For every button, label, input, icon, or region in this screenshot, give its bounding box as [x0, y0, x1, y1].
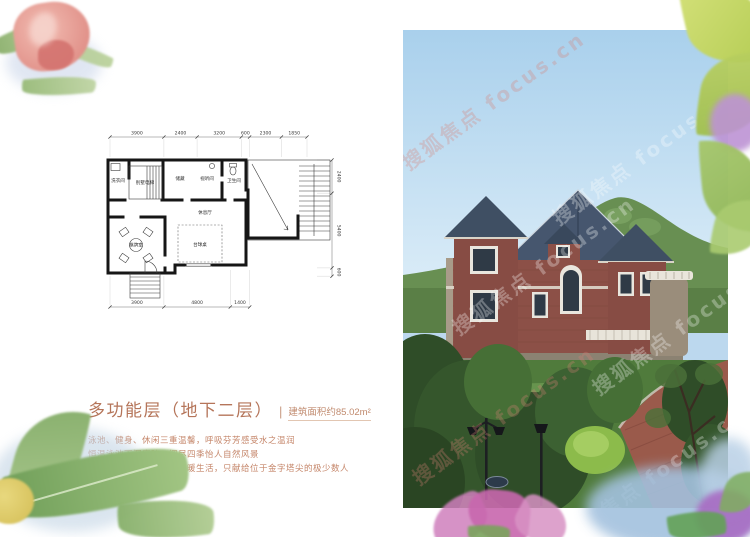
staircase: [248, 160, 330, 240]
dim-label: 2300: [260, 131, 272, 137]
watercolor-leaf-icon: [116, 492, 217, 537]
dim-label: 2400: [175, 131, 187, 137]
dim-label: 3900: [131, 300, 143, 306]
floor-title: 多功能层（地下二层）: [88, 396, 273, 421]
villa-photo: 搜狐焦点 focus.cn 搜狐焦点 focus.cn 搜狐焦点 focus.c…: [403, 30, 728, 508]
dim-label: 600: [241, 131, 250, 137]
lemon-icon: [0, 478, 34, 524]
floor-plan: 3900 2400 3200 600 2300 1850 2400 5400 6…: [85, 120, 350, 330]
window: [185, 264, 212, 266]
garden-well: [486, 477, 508, 488]
floor-info-block: 多功能层（地下二层） | 建筑面积约85.02m² 泳池、健身、休闲三重温馨，呼…: [88, 396, 388, 475]
flower-sepal-icon: [467, 522, 511, 537]
watercolor-leaf-icon: [665, 503, 729, 537]
room-label: 视听间: [200, 175, 214, 182]
garden: [403, 334, 728, 508]
watercolor-shadow-topleft: [6, 34, 102, 92]
villa-photo-scene: [403, 30, 728, 508]
watercolor-leaf-icon: [0, 397, 93, 528]
room-label: 棋牌室: [129, 242, 143, 249]
exterior-stair: [130, 261, 160, 298]
dimension-lines: 3900 2400 3200 600 2300 1850 2400 5400 6…: [108, 131, 341, 309]
dim-label: 5400: [336, 225, 342, 237]
rose-bud-inner-icon: [38, 40, 74, 70]
dim-label: 1850: [288, 131, 300, 137]
rose-bud-icon: [10, 0, 95, 75]
rose-leaf-icon: [0, 14, 54, 62]
dim-label: 600: [336, 268, 342, 277]
description-line: 恒温泳池下沉庭院，阅尽四季怡人自然风景: [88, 447, 388, 461]
area-label: 建筑面积约85.02m²: [288, 404, 370, 421]
title-separator: |: [279, 402, 282, 421]
description-line: 别墅私家电梯，太阳能采暖生活，只献给位于金字塔尖的极少数人: [88, 461, 388, 475]
rose-leaf-icon: [21, 72, 97, 100]
room-label: 休息厅: [198, 209, 212, 216]
dim-label: 3900: [131, 131, 143, 137]
rose-leaf-icon: [57, 35, 114, 74]
room-label: 台球桌: [193, 241, 207, 248]
description-line: 泳池、健身、休闲三重温馨，呼吸芬芳感受水之温润: [88, 433, 388, 447]
room-label: 卫生间: [227, 177, 241, 184]
dim-label: 2400: [336, 171, 342, 183]
room-label: 储藏: [175, 175, 185, 182]
room-label: 洗衣间: [111, 177, 125, 184]
dim-label: 4800: [191, 300, 203, 306]
dim-label: 3200: [213, 131, 225, 137]
dim-label: 1400: [234, 300, 246, 306]
rose-highlight: [25, 9, 61, 50]
brochure-page: 3900 2400 3200 600 2300 1850 2400 5400 6…: [0, 0, 750, 537]
room-label: 别墅电梯: [136, 179, 155, 186]
